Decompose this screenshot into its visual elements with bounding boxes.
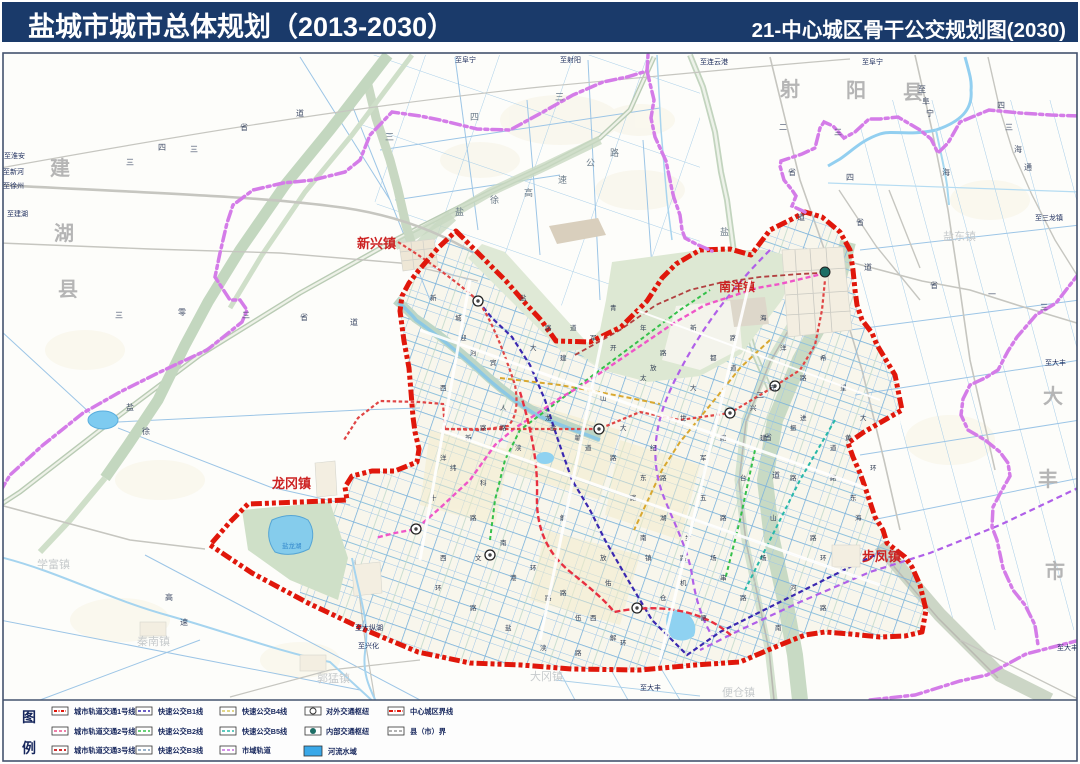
svg-text:路: 路: [660, 348, 667, 357]
svg-text:世: 世: [680, 413, 687, 422]
svg-text:放: 放: [650, 363, 657, 372]
svg-text:大: 大: [690, 383, 697, 392]
svg-text:至兴化: 至兴化: [358, 641, 379, 650]
svg-text:城: 城: [455, 314, 462, 322]
svg-text:省: 省: [300, 312, 308, 322]
svg-text:省: 省: [764, 432, 772, 442]
svg-text:三: 三: [834, 128, 842, 137]
svg-text:龙: 龙: [545, 413, 552, 422]
svg-text:洋: 洋: [440, 453, 447, 462]
svg-text:三: 三: [126, 158, 134, 167]
svg-text:东: 东: [770, 383, 777, 392]
svg-text:新兴镇: 新兴镇: [357, 236, 396, 251]
svg-text:快速公交B2线: 快速公交B2线: [157, 727, 204, 736]
svg-text:路: 路: [545, 323, 552, 332]
svg-text:仓: 仓: [660, 593, 667, 602]
svg-text:零: 零: [178, 308, 186, 317]
svg-text:路: 路: [720, 513, 727, 522]
svg-text:四: 四: [158, 143, 166, 152]
svg-text:市: 市: [1045, 559, 1065, 583]
svg-text:海: 海: [760, 313, 767, 322]
svg-text:快速公交B4线: 快速公交B4线: [241, 707, 288, 716]
svg-text:河: 河: [790, 584, 797, 592]
svg-text:三: 三: [242, 311, 250, 320]
svg-text:盐: 盐: [455, 206, 464, 217]
svg-text:镇: 镇: [645, 553, 652, 562]
svg-text:省: 省: [788, 167, 796, 177]
svg-text:道: 道: [570, 323, 577, 332]
svg-text:路: 路: [820, 603, 827, 612]
svg-text:城市轨道交通1号线: 城市轨道交通1号线: [74, 707, 136, 716]
svg-text:中心城区界线: 中心城区界线: [410, 707, 454, 716]
svg-text:城市轨道交通2号线: 城市轨道交通2号线: [74, 727, 136, 736]
svg-text:至大丰: 至大丰: [1045, 358, 1066, 367]
svg-text:串: 串: [720, 574, 727, 582]
svg-text:省: 省: [856, 217, 864, 227]
svg-text:科: 科: [480, 478, 487, 487]
svg-text:场: 场: [760, 553, 767, 562]
svg-text:道: 道: [830, 443, 837, 452]
svg-text:洋: 洋: [780, 343, 787, 352]
svg-text:县（市）界: 县（市）界: [410, 727, 447, 736]
svg-text:学富镇: 学富镇: [37, 557, 70, 571]
svg-text:三: 三: [1040, 303, 1048, 312]
svg-text:盐: 盐: [720, 226, 729, 237]
svg-text:路: 路: [660, 473, 667, 482]
svg-text:道: 道: [296, 108, 304, 118]
svg-text:盐: 盐: [550, 423, 557, 432]
svg-text:大: 大: [620, 423, 627, 432]
svg-text:至徐州: 至徐州: [3, 181, 24, 190]
svg-text:三: 三: [555, 92, 564, 102]
svg-text:路: 路: [500, 423, 507, 432]
svg-text:宁: 宁: [926, 108, 934, 118]
svg-text:环: 环: [820, 554, 827, 562]
svg-text:至新河: 至新河: [3, 167, 24, 176]
svg-text:路: 路: [810, 533, 817, 542]
svg-text:至射阳: 至射阳: [560, 55, 581, 64]
svg-text:场: 场: [710, 553, 717, 562]
svg-text:道: 道: [772, 470, 780, 480]
svg-text:路: 路: [800, 373, 807, 382]
svg-text:公: 公: [586, 158, 595, 168]
svg-text:对外交通枢纽: 对外交通枢纽: [326, 707, 370, 716]
svg-text:道: 道: [350, 317, 358, 327]
svg-text:三: 三: [385, 132, 394, 142]
svg-text:希: 希: [820, 353, 827, 362]
svg-text:例: 例: [22, 740, 36, 756]
svg-text:速: 速: [180, 618, 188, 627]
svg-text:道: 道: [797, 212, 805, 222]
svg-text:四: 四: [997, 101, 1005, 110]
svg-text:大: 大: [860, 413, 867, 422]
svg-text:伍: 伍: [575, 613, 582, 622]
svg-text:新: 新: [430, 293, 437, 302]
svg-text:至连云港: 至连云港: [700, 57, 728, 66]
svg-text:阜: 阜: [922, 96, 930, 106]
svg-text:西: 西: [590, 614, 597, 622]
svg-text:三: 三: [1005, 123, 1013, 132]
svg-text:至大丰: 至大丰: [1057, 643, 1078, 652]
svg-text:内部交通枢纽: 内部交通枢纽: [326, 727, 370, 736]
svg-text:高: 高: [524, 187, 533, 198]
svg-text:高: 高: [165, 592, 173, 602]
svg-text:大: 大: [530, 343, 537, 352]
svg-text:至大纵湖: 至大纵湖: [355, 623, 383, 632]
svg-text:河流水域: 河流水域: [328, 747, 358, 756]
svg-text:郭猛镇: 郭猛镇: [317, 671, 350, 685]
svg-text:进: 进: [800, 414, 807, 422]
svg-text:湖: 湖: [54, 222, 74, 245]
svg-text:至建湖: 至建湖: [7, 209, 28, 218]
svg-text:机: 机: [680, 578, 687, 587]
svg-text:文: 文: [475, 553, 482, 562]
svg-text:纪: 纪: [650, 443, 657, 452]
svg-text:宾: 宾: [490, 358, 497, 367]
svg-text:省: 省: [240, 122, 248, 132]
svg-text:盐城市城市总体规划（2013-2030）: 盐城市城市总体规划（2013-2030）: [28, 11, 454, 42]
svg-text:台: 台: [740, 473, 747, 482]
svg-text:快速公交B3线: 快速公交B3线: [157, 746, 204, 755]
svg-text:海: 海: [855, 513, 862, 522]
svg-text:盐: 盐: [505, 623, 512, 632]
svg-text:纬: 纬: [450, 463, 457, 472]
svg-text:便仓镇: 便仓镇: [722, 685, 755, 699]
svg-text:二: 二: [779, 123, 787, 132]
svg-text:路: 路: [610, 147, 619, 158]
svg-text:黄: 黄: [845, 433, 852, 442]
svg-text:人: 人: [500, 404, 507, 412]
svg-text:军: 军: [590, 334, 597, 342]
svg-text:路: 路: [790, 473, 797, 482]
svg-text:西: 西: [440, 384, 447, 392]
svg-text:环: 环: [530, 564, 537, 572]
svg-text:快速公交B5线: 快速公交B5线: [241, 727, 288, 736]
svg-text:路: 路: [470, 513, 477, 522]
svg-text:三: 三: [190, 145, 198, 154]
svg-text:海: 海: [1014, 144, 1022, 154]
svg-text:县: 县: [58, 279, 78, 301]
svg-text:路: 路: [740, 593, 747, 602]
svg-text:射: 射: [779, 77, 800, 101]
svg-text:放: 放: [600, 553, 607, 562]
svg-text:通: 通: [1024, 162, 1032, 172]
svg-text:21-中心城区骨干公交规划图(2030): 21-中心城区骨干公交规划图(2030): [752, 18, 1066, 42]
svg-text:盐: 盐: [126, 402, 134, 412]
svg-text:环: 环: [435, 584, 442, 592]
svg-text:步凤镇: 步凤镇: [862, 549, 901, 564]
svg-text:年: 年: [640, 323, 647, 332]
svg-text:路: 路: [560, 588, 567, 597]
svg-text:至大丰: 至大丰: [640, 683, 661, 692]
svg-text:港: 港: [510, 573, 517, 582]
svg-text:快速公交B1线: 快速公交B1线: [157, 707, 204, 716]
svg-text:大冈镇: 大冈镇: [530, 669, 563, 683]
svg-text:都: 都: [710, 354, 717, 362]
svg-text:建: 建: [560, 353, 567, 362]
svg-text:盐东镇: 盐东镇: [943, 229, 976, 243]
svg-text:振: 振: [790, 423, 797, 432]
svg-text:太: 太: [640, 373, 647, 382]
svg-text:路: 路: [610, 453, 617, 462]
svg-text:南: 南: [775, 623, 782, 632]
svg-text:盐: 盐: [520, 293, 527, 302]
svg-text:丰: 丰: [1038, 467, 1058, 491]
svg-text:路: 路: [470, 603, 477, 612]
svg-text:道: 道: [585, 443, 592, 452]
svg-text:东: 东: [640, 473, 647, 482]
svg-text:城市轨道交通3号线: 城市轨道交通3号线: [74, 746, 136, 755]
svg-text:解: 解: [610, 633, 617, 642]
svg-text:二: 二: [756, 391, 764, 400]
svg-text:开: 开: [610, 344, 617, 352]
svg-text:图: 图: [22, 709, 36, 725]
svg-text:青: 青: [610, 303, 617, 312]
svg-text:徐: 徐: [490, 194, 499, 205]
svg-text:南: 南: [500, 538, 507, 547]
svg-text:至三龙镇: 至三龙镇: [1035, 213, 1063, 222]
svg-text:阳: 阳: [846, 79, 866, 102]
svg-text:大: 大: [1043, 385, 1063, 408]
svg-text:环: 环: [620, 639, 627, 647]
svg-text:至: 至: [918, 85, 926, 94]
svg-text:渎: 渎: [540, 643, 547, 652]
svg-text:三: 三: [115, 311, 123, 320]
svg-text:环: 环: [870, 464, 877, 472]
svg-text:西: 西: [440, 554, 447, 562]
svg-text:秦南镇: 秦南镇: [137, 634, 170, 648]
svg-text:一: 一: [988, 290, 996, 299]
svg-text:省: 省: [930, 280, 938, 290]
svg-text:路: 路: [480, 423, 487, 432]
svg-text:佑: 佑: [605, 578, 612, 587]
svg-text:南: 南: [640, 533, 647, 542]
svg-text:渎: 渎: [515, 443, 522, 452]
svg-text:建: 建: [50, 156, 70, 180]
svg-text:四: 四: [470, 112, 479, 122]
svg-text:徐: 徐: [142, 426, 150, 436]
svg-text:便: 便: [700, 613, 707, 622]
svg-text:东: 东: [850, 493, 857, 502]
svg-text:龙冈镇: 龙冈镇: [272, 476, 311, 491]
svg-text:至阜宁: 至阜宁: [862, 57, 883, 66]
svg-text:速: 速: [558, 175, 567, 185]
svg-text:湖: 湖: [660, 513, 667, 522]
svg-text:道: 道: [864, 262, 872, 272]
svg-text:市域轨道: 市域轨道: [242, 746, 272, 755]
svg-text:至阜宁: 至阜宁: [455, 55, 476, 64]
svg-text:兴: 兴: [750, 403, 757, 412]
svg-text:盐龙湖: 盐龙湖: [282, 541, 302, 550]
svg-text:路: 路: [575, 648, 582, 657]
svg-text:至淮安: 至淮安: [4, 151, 25, 160]
svg-text:海: 海: [942, 167, 950, 177]
svg-text:四: 四: [846, 173, 854, 182]
svg-text:山: 山: [770, 513, 777, 522]
svg-text:五: 五: [700, 494, 707, 502]
